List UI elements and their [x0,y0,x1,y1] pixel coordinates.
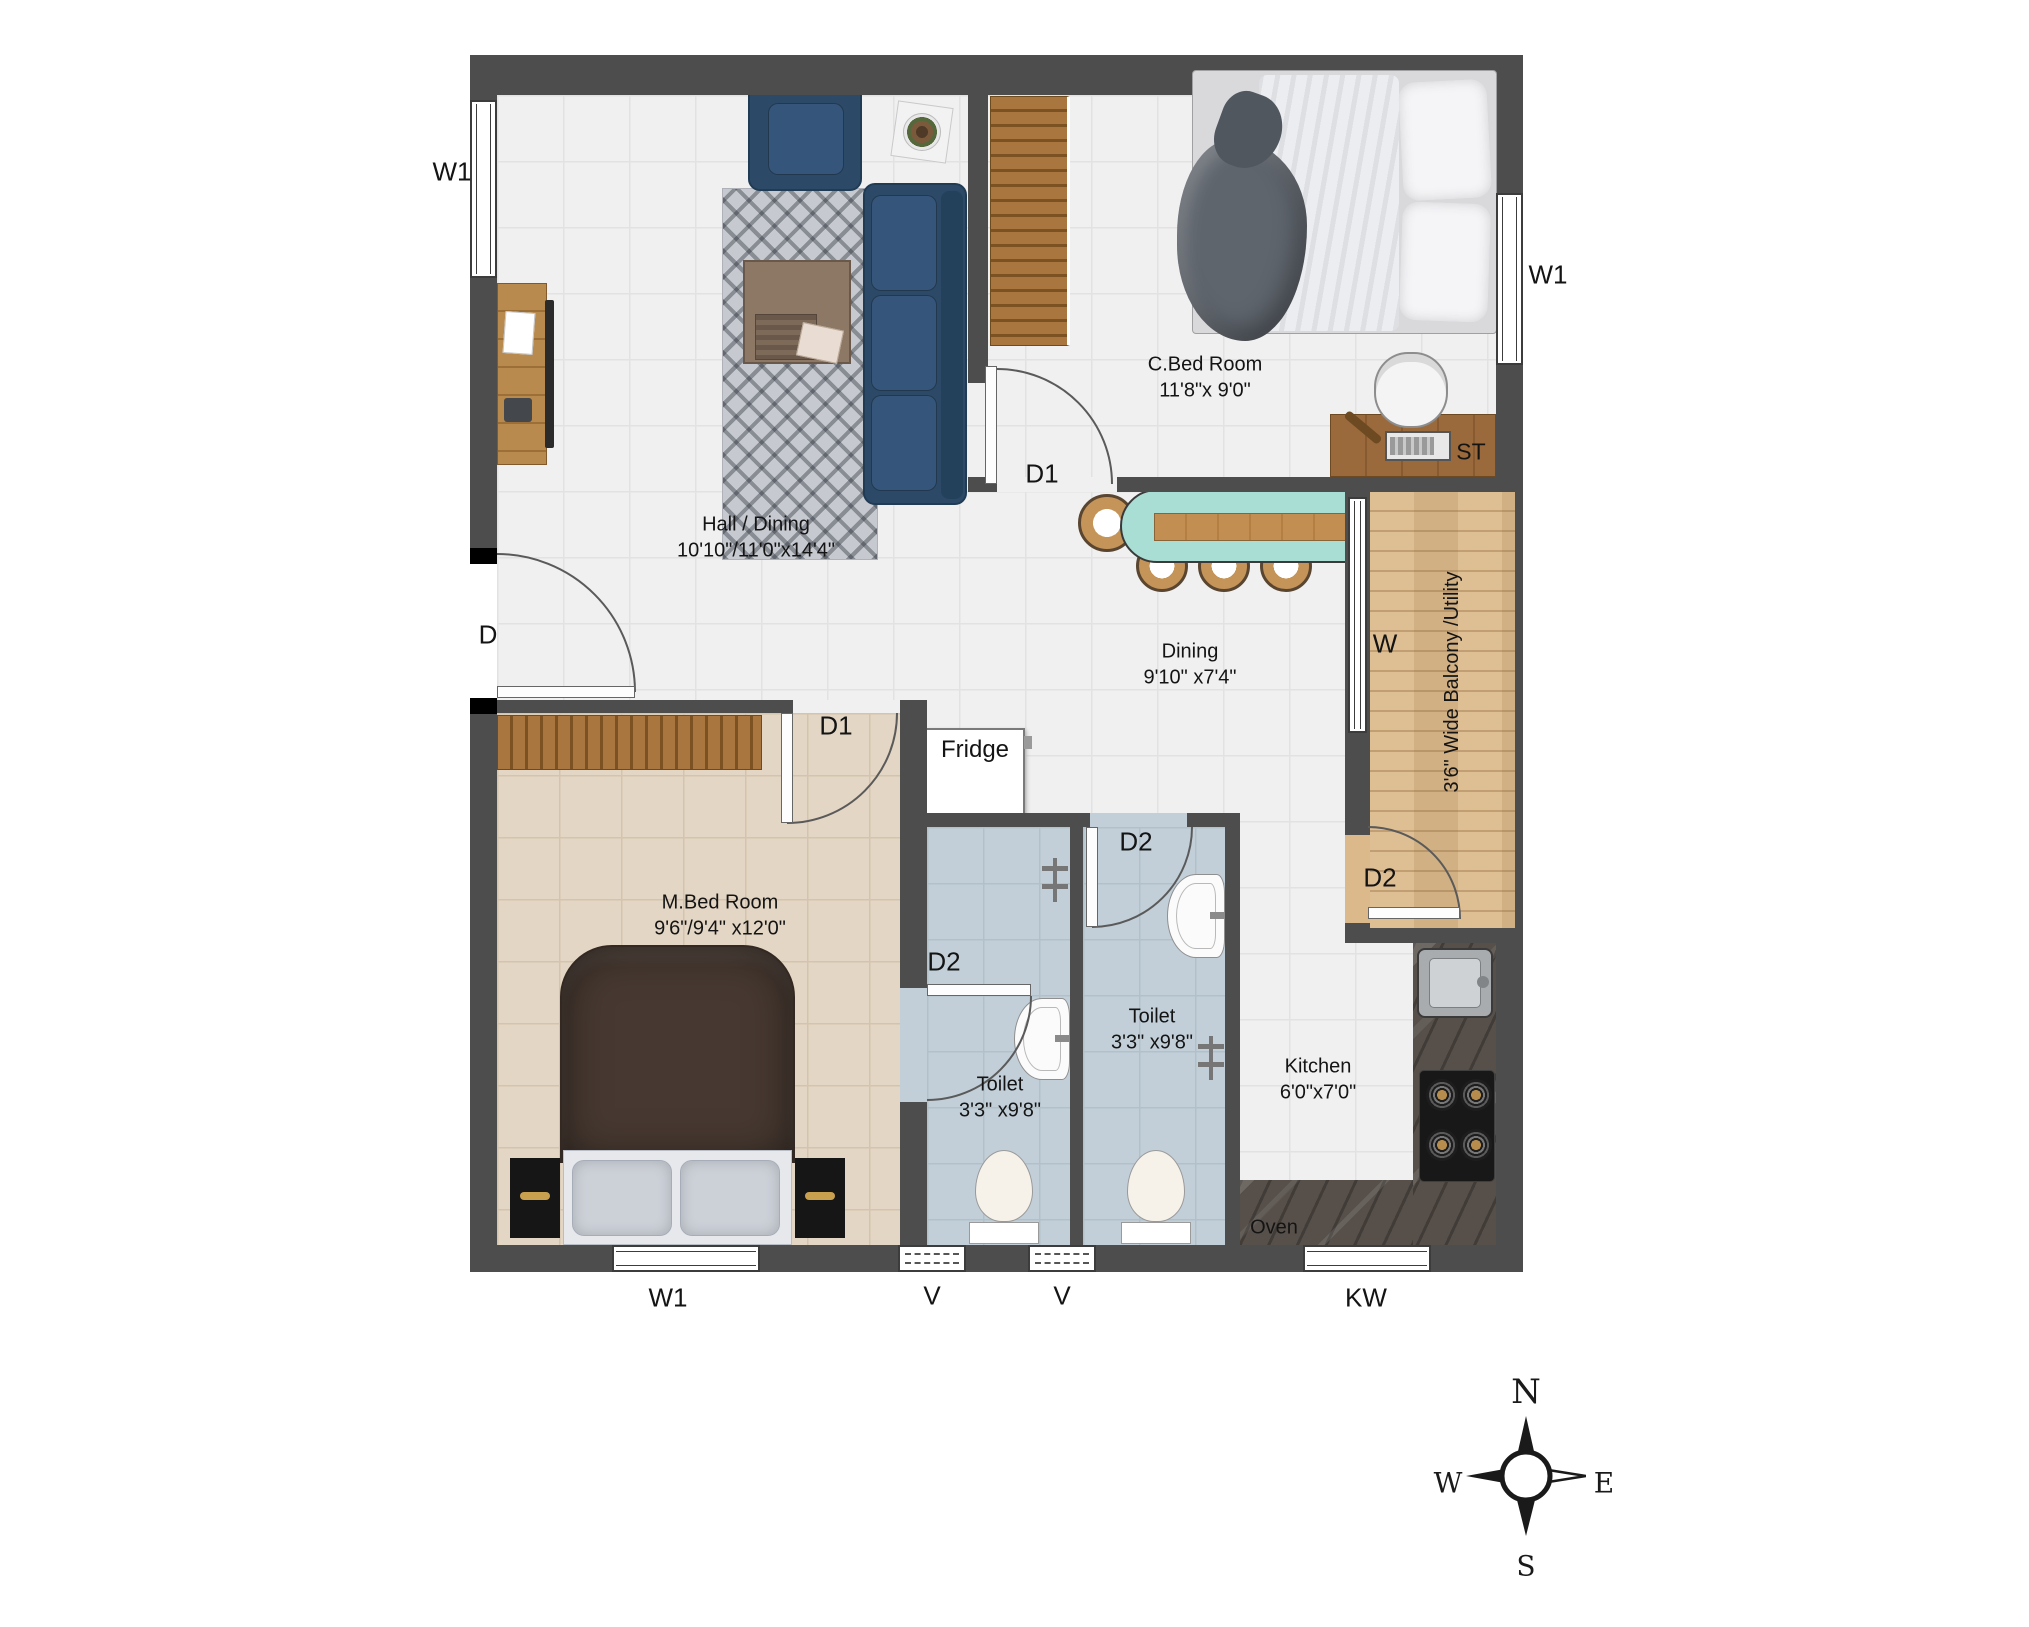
cbed-name: C.Bed Room [1148,352,1263,378]
kitchen-label: Kitchen 6'0"x7'0" [1280,1054,1356,1107]
marker-w1-bottom: W1 [649,1283,688,1314]
door-swing-arcs [0,0,2029,1627]
floor-plan: Hall / Dining 10'10"/11'0"x14'4" C.Bed R… [0,0,2029,1627]
oven-label: Oven [1250,1217,1298,1240]
door-leaf-toilet1 [927,984,1031,996]
compass: N E W S [1426,1356,1636,1596]
marker-d2-balcony: D2 [1363,863,1396,894]
marker-w1-left: W1 [433,157,472,188]
marker-v1: V [923,1281,940,1312]
door-leaf-balcony [1368,907,1460,919]
hall-name: Hall / Dining [677,512,835,538]
hall-dims: 10'10"/11'0"x14'4" [677,538,835,564]
marker-d2-toilet1: D2 [927,947,960,978]
toilet1-dims: 3'3" x9'8" [959,1098,1041,1124]
marker-st: ST [1456,439,1485,466]
door-leaf-main [497,686,635,698]
balcony-label: 3'6" Wide Balcony /Utility [1439,572,1465,793]
door-leaf-mbed [781,713,793,823]
mbed-dims: 9'6"/9'4" x12'0" [654,916,786,942]
marker-v2: V [1053,1281,1070,1312]
marker-kw: KW [1345,1283,1387,1314]
toilet2-label: Toilet 3'3" x9'8" [1111,1004,1193,1057]
compass-rose-icon [1466,1416,1586,1536]
toilet2-dims: 3'3" x9'8" [1111,1030,1193,1056]
toilet1-name: Toilet [959,1072,1041,1098]
mbed-label: M.Bed Room 9'6"/9'4" x12'0" [654,890,786,943]
fridge-label: Fridge [941,736,1009,764]
cbed-dims: 11'8"x 9'0" [1148,378,1263,404]
marker-w1-right: W1 [1529,260,1568,291]
kitchen-dims: 6'0"x7'0" [1280,1080,1356,1106]
marker-w: W [1373,629,1398,660]
compass-e: E [1594,1467,1614,1500]
door-leaf-cbed [985,366,997,484]
marker-d: D [479,620,498,651]
compass-s: S [1516,1550,1535,1583]
marker-d2-toilet2: D2 [1119,827,1152,858]
mbed-name: M.Bed Room [654,890,786,916]
cbed-label: C.Bed Room 11'8"x 9'0" [1148,352,1263,405]
compass-n: N [1511,1372,1541,1412]
marker-d1-cbed: D1 [1025,459,1058,490]
door-leaf-toilet2 [1086,827,1098,927]
dining-label: Dining 9'10" x7'4" [1143,639,1236,692]
dining-name: Dining [1143,639,1236,665]
dining-dims: 9'10" x7'4" [1143,665,1236,691]
marker-d1-mbed: D1 [819,711,852,742]
kitchen-name: Kitchen [1280,1054,1356,1080]
toilet1-label: Toilet 3'3" x9'8" [959,1072,1041,1125]
hall-label: Hall / Dining 10'10"/11'0"x14'4" [677,512,835,565]
compass-w: W [1434,1467,1463,1500]
toilet2-name: Toilet [1111,1004,1193,1030]
